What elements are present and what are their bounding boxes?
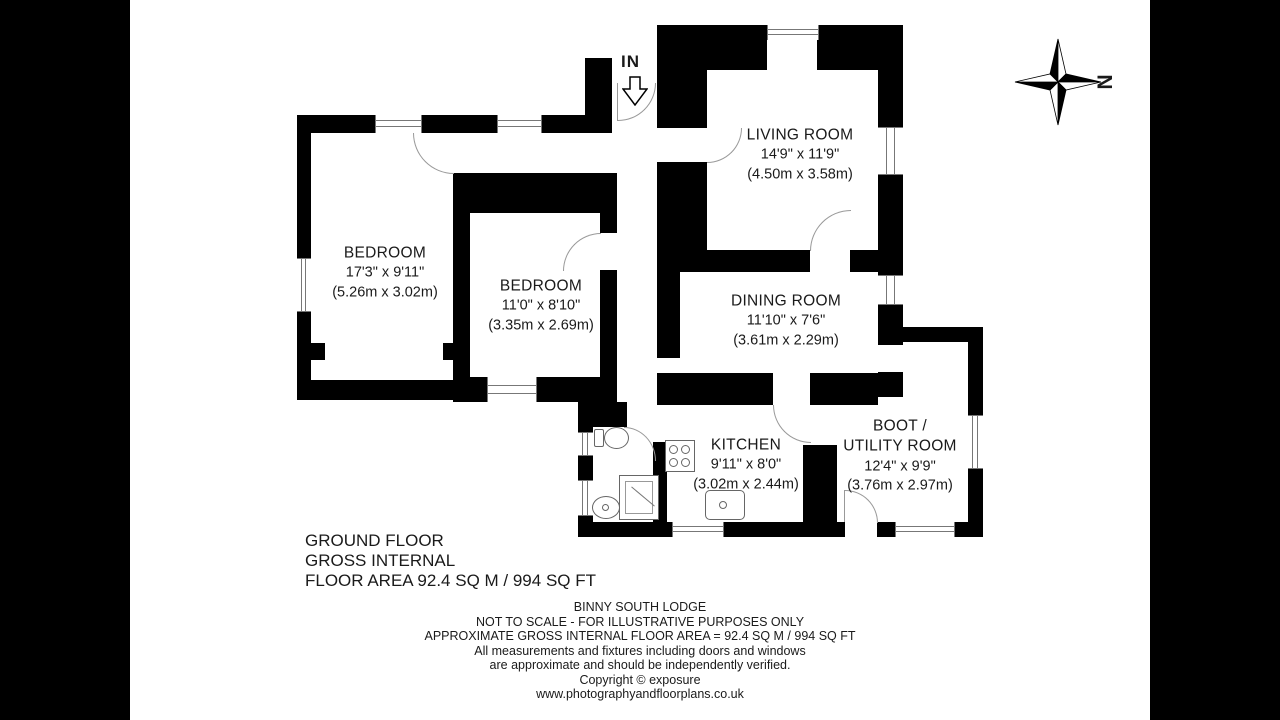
entrance-arrow-icon [622,76,648,106]
wall [657,373,878,405]
hob-icon [669,458,678,467]
room-dims-metric: (3.61m x 2.29m) [731,331,841,350]
room-name: BEDROOM [332,244,438,264]
floor-summary: GROUND FLOOR GROSS INTERNAL FLOOR AREA 9… [305,531,596,591]
window-symbol [968,415,983,469]
room-name: BEDROOM [488,277,594,297]
wall [578,402,627,427]
floor-plan-page: BEDROOM 17'3" x 9'11" (5.26m x 3.02m) BE… [0,0,1280,720]
wall-nib [311,343,325,360]
room-dims-imperial: 14'9" x 11'9" [747,146,854,165]
door-opening [657,358,680,373]
floor-summary-line: GROUND FLOOR [305,531,596,551]
room-dims-metric: (3.35m x 2.69m) [488,316,594,335]
toilet-icon [604,427,629,449]
hob-icon [681,458,690,467]
disclaimer-line: NOT TO SCALE - FOR ILLUSTRATIVE PURPOSES… [340,615,940,630]
room-name: LIVING ROOM [747,126,854,146]
window-symbol [578,480,593,516]
entrance-label: IN [621,52,640,72]
shower-icon [625,481,653,514]
window-symbol [578,432,593,456]
room-name: BOOT / [843,416,957,436]
floor-summary-line: GROSS INTERNAL [305,551,596,571]
window-symbol [767,25,819,40]
door-arc [810,210,851,251]
door-arc [624,427,656,461]
disclaimer: BINNY SOUTH LODGE NOT TO SCALE - FOR ILL… [340,600,940,702]
kitchen-sink-icon [719,501,727,509]
wall-nib [443,343,457,360]
room-name: DINING ROOM [731,292,841,312]
room-dims-imperial: 17'3" x 9'11" [332,264,438,283]
disclaimer-line: are approximate and should be independen… [340,658,940,673]
wall [585,58,612,133]
wall [817,25,903,70]
room-name: KITCHEN [693,436,799,456]
wall [707,25,767,70]
door-opening [878,345,903,372]
hob-icon [665,440,695,472]
door-leaf [617,83,618,121]
window-symbol [497,115,542,133]
door-opening [845,522,877,537]
room-name: UTILITY ROOM [843,437,957,457]
toilet-icon [594,429,604,447]
door-arc [563,233,601,271]
window-symbol [672,522,724,537]
property-name: BINNY SOUTH LODGE [340,600,940,615]
wall [657,258,680,358]
door-opening [810,250,850,272]
window-symbol [297,258,311,312]
compass-north-label: N [1092,74,1116,89]
window-symbol [375,115,422,133]
compass-rose-icon [1013,37,1103,127]
door-opening [600,233,617,270]
wall [657,250,903,272]
window-symbol [895,522,955,537]
window-symbol [487,377,537,402]
website-url: www.photographyandfloorplans.co.uk [340,687,940,702]
room-dims-imperial: 11'10" x 7'6" [731,312,841,331]
letterbox-right [1150,0,1280,720]
room-dims-metric: (4.50m x 3.58m) [747,165,854,184]
room-dims-imperial: 11'0" x 8'10" [488,297,594,316]
wall [453,173,617,213]
floor-summary-line: FLOOR AREA 92.4 SQ M / 994 SQ FT [305,571,596,591]
window-symbol [878,127,903,175]
room-label-living-room: LIVING ROOM 14'9" x 11'9" (4.50m x 3.58m… [747,126,854,185]
door-arc [413,133,454,174]
room-dims-metric: (3.76m x 2.97m) [843,476,957,495]
wall [297,115,590,133]
disclaimer-line: APPROXIMATE GROSS INTERNAL FLOOR AREA = … [340,629,940,644]
washbasin-icon [602,504,609,511]
room-dims-metric: (3.02m x 2.44m) [693,475,799,494]
door-arc [707,128,742,163]
hob-icon [681,445,690,454]
room-label-kitchen: KITCHEN 9'11" x 8'0" (3.02m x 2.44m) [693,436,799,495]
disclaimer-line: All measurements and fixtures including … [340,644,940,659]
wall [297,380,457,400]
room-dims-imperial: 12'4" x 9'9" [843,457,957,476]
room-label-bedroom-2: BEDROOM 11'0" x 8'10" (3.35m x 2.69m) [488,277,594,336]
room-dims-imperial: 9'11" x 8'0" [693,456,799,475]
copyright-line: Copyright © exposure [340,673,940,688]
door-opening [657,128,707,162]
room-dims-metric: (5.26m x 3.02m) [332,283,438,302]
hob-icon [669,445,678,454]
window-symbol [878,275,903,305]
door-opening [773,373,810,405]
room-label-boot-utility: BOOT / UTILITY ROOM 12'4" x 9'9" (3.76m … [843,416,957,495]
wall [803,445,837,522]
room-label-dining-room: DINING ROOM 11'10" x 7'6" (3.61m x 2.29m… [731,292,841,351]
letterbox-left [0,0,130,720]
room-label-bedroom-1: BEDROOM 17'3" x 9'11" (5.26m x 3.02m) [332,244,438,303]
